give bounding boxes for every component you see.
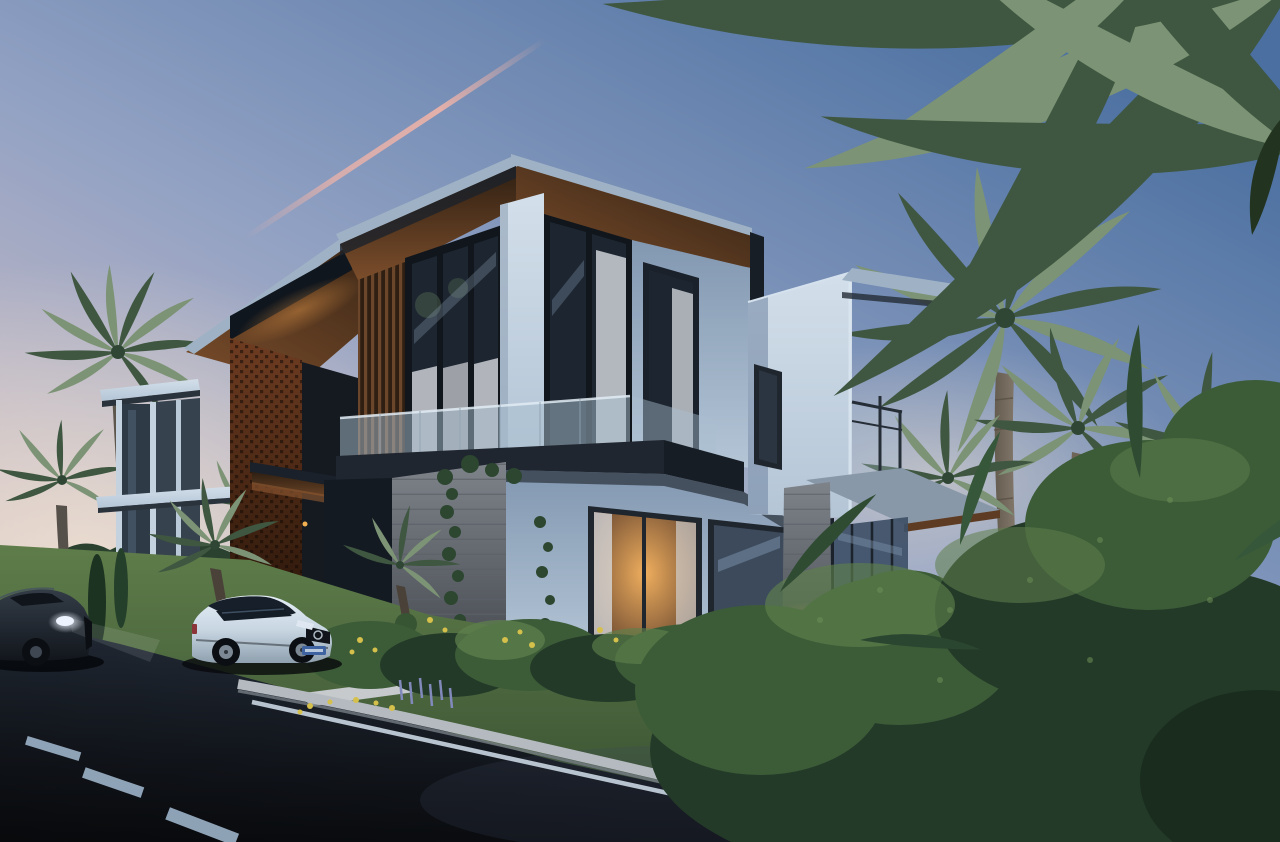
wheel-rim	[30, 646, 42, 658]
main-volume	[324, 154, 790, 664]
tail-light	[192, 624, 197, 634]
entrance-light	[303, 522, 308, 527]
curtain-panel	[594, 512, 612, 648]
wheel-hub	[224, 650, 228, 654]
license-plate-text	[305, 649, 323, 652]
cypress-tree	[114, 548, 128, 628]
headlight	[56, 616, 74, 626]
villa-dusk-scene	[0, 0, 1280, 842]
rendering-canvas	[0, 0, 1280, 842]
box-window-pane	[759, 370, 777, 464]
